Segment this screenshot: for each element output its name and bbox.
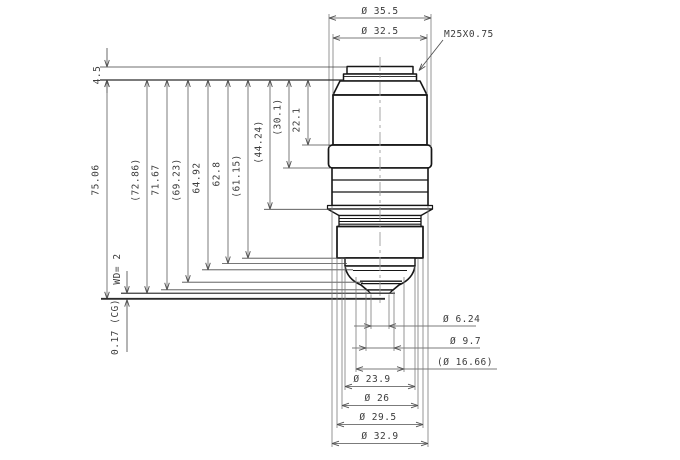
thread-callout-label: M25X0.75 [444, 29, 494, 40]
length-label: (72.86) [131, 158, 142, 202]
diameter-label: Ø 6.24 [443, 314, 480, 325]
diameter-label: Ø 23.9 [353, 374, 390, 385]
diameter-label: Ø 35.5 [361, 6, 398, 17]
diameter-label: Ø 32.5 [361, 26, 398, 37]
length-label: (44.24) [254, 120, 265, 164]
cover-glass-label: 0.17 (CG) [110, 299, 121, 355]
datum-label: 4.5 [92, 66, 103, 85]
diameter-label: Ø 26 [365, 393, 390, 404]
length-label: (30.1) [273, 98, 284, 135]
objective-lens-dimension-drawing: Ø 35.5Ø 32.5M25X0.754.575.06(72.86)71.67… [0, 0, 680, 460]
length-label: 75.06 [91, 164, 102, 195]
length-label: (61.15) [232, 154, 243, 198]
diameter-label: Ø 9.7 [450, 336, 481, 347]
working-distance-label: WD= 2 [112, 253, 123, 284]
technical-drawing-page: Ø 35.5Ø 32.5M25X0.754.575.06(72.86)71.67… [0, 0, 680, 460]
length-label: 71.67 [151, 164, 162, 195]
diameter-label: Ø 29.5 [359, 412, 396, 423]
length-label: 64.92 [192, 162, 203, 193]
length-label: 22.1 [292, 108, 303, 133]
diameter-label: Ø 32.9 [361, 431, 398, 442]
dimension-group: Ø 35.5Ø 32.5M25X0.754.575.06(72.86)71.67… [91, 6, 498, 447]
length-label: 62.8 [212, 162, 223, 187]
length-label: (69.23) [172, 158, 183, 202]
diameter-label: (Ø 16.66) [437, 357, 493, 368]
